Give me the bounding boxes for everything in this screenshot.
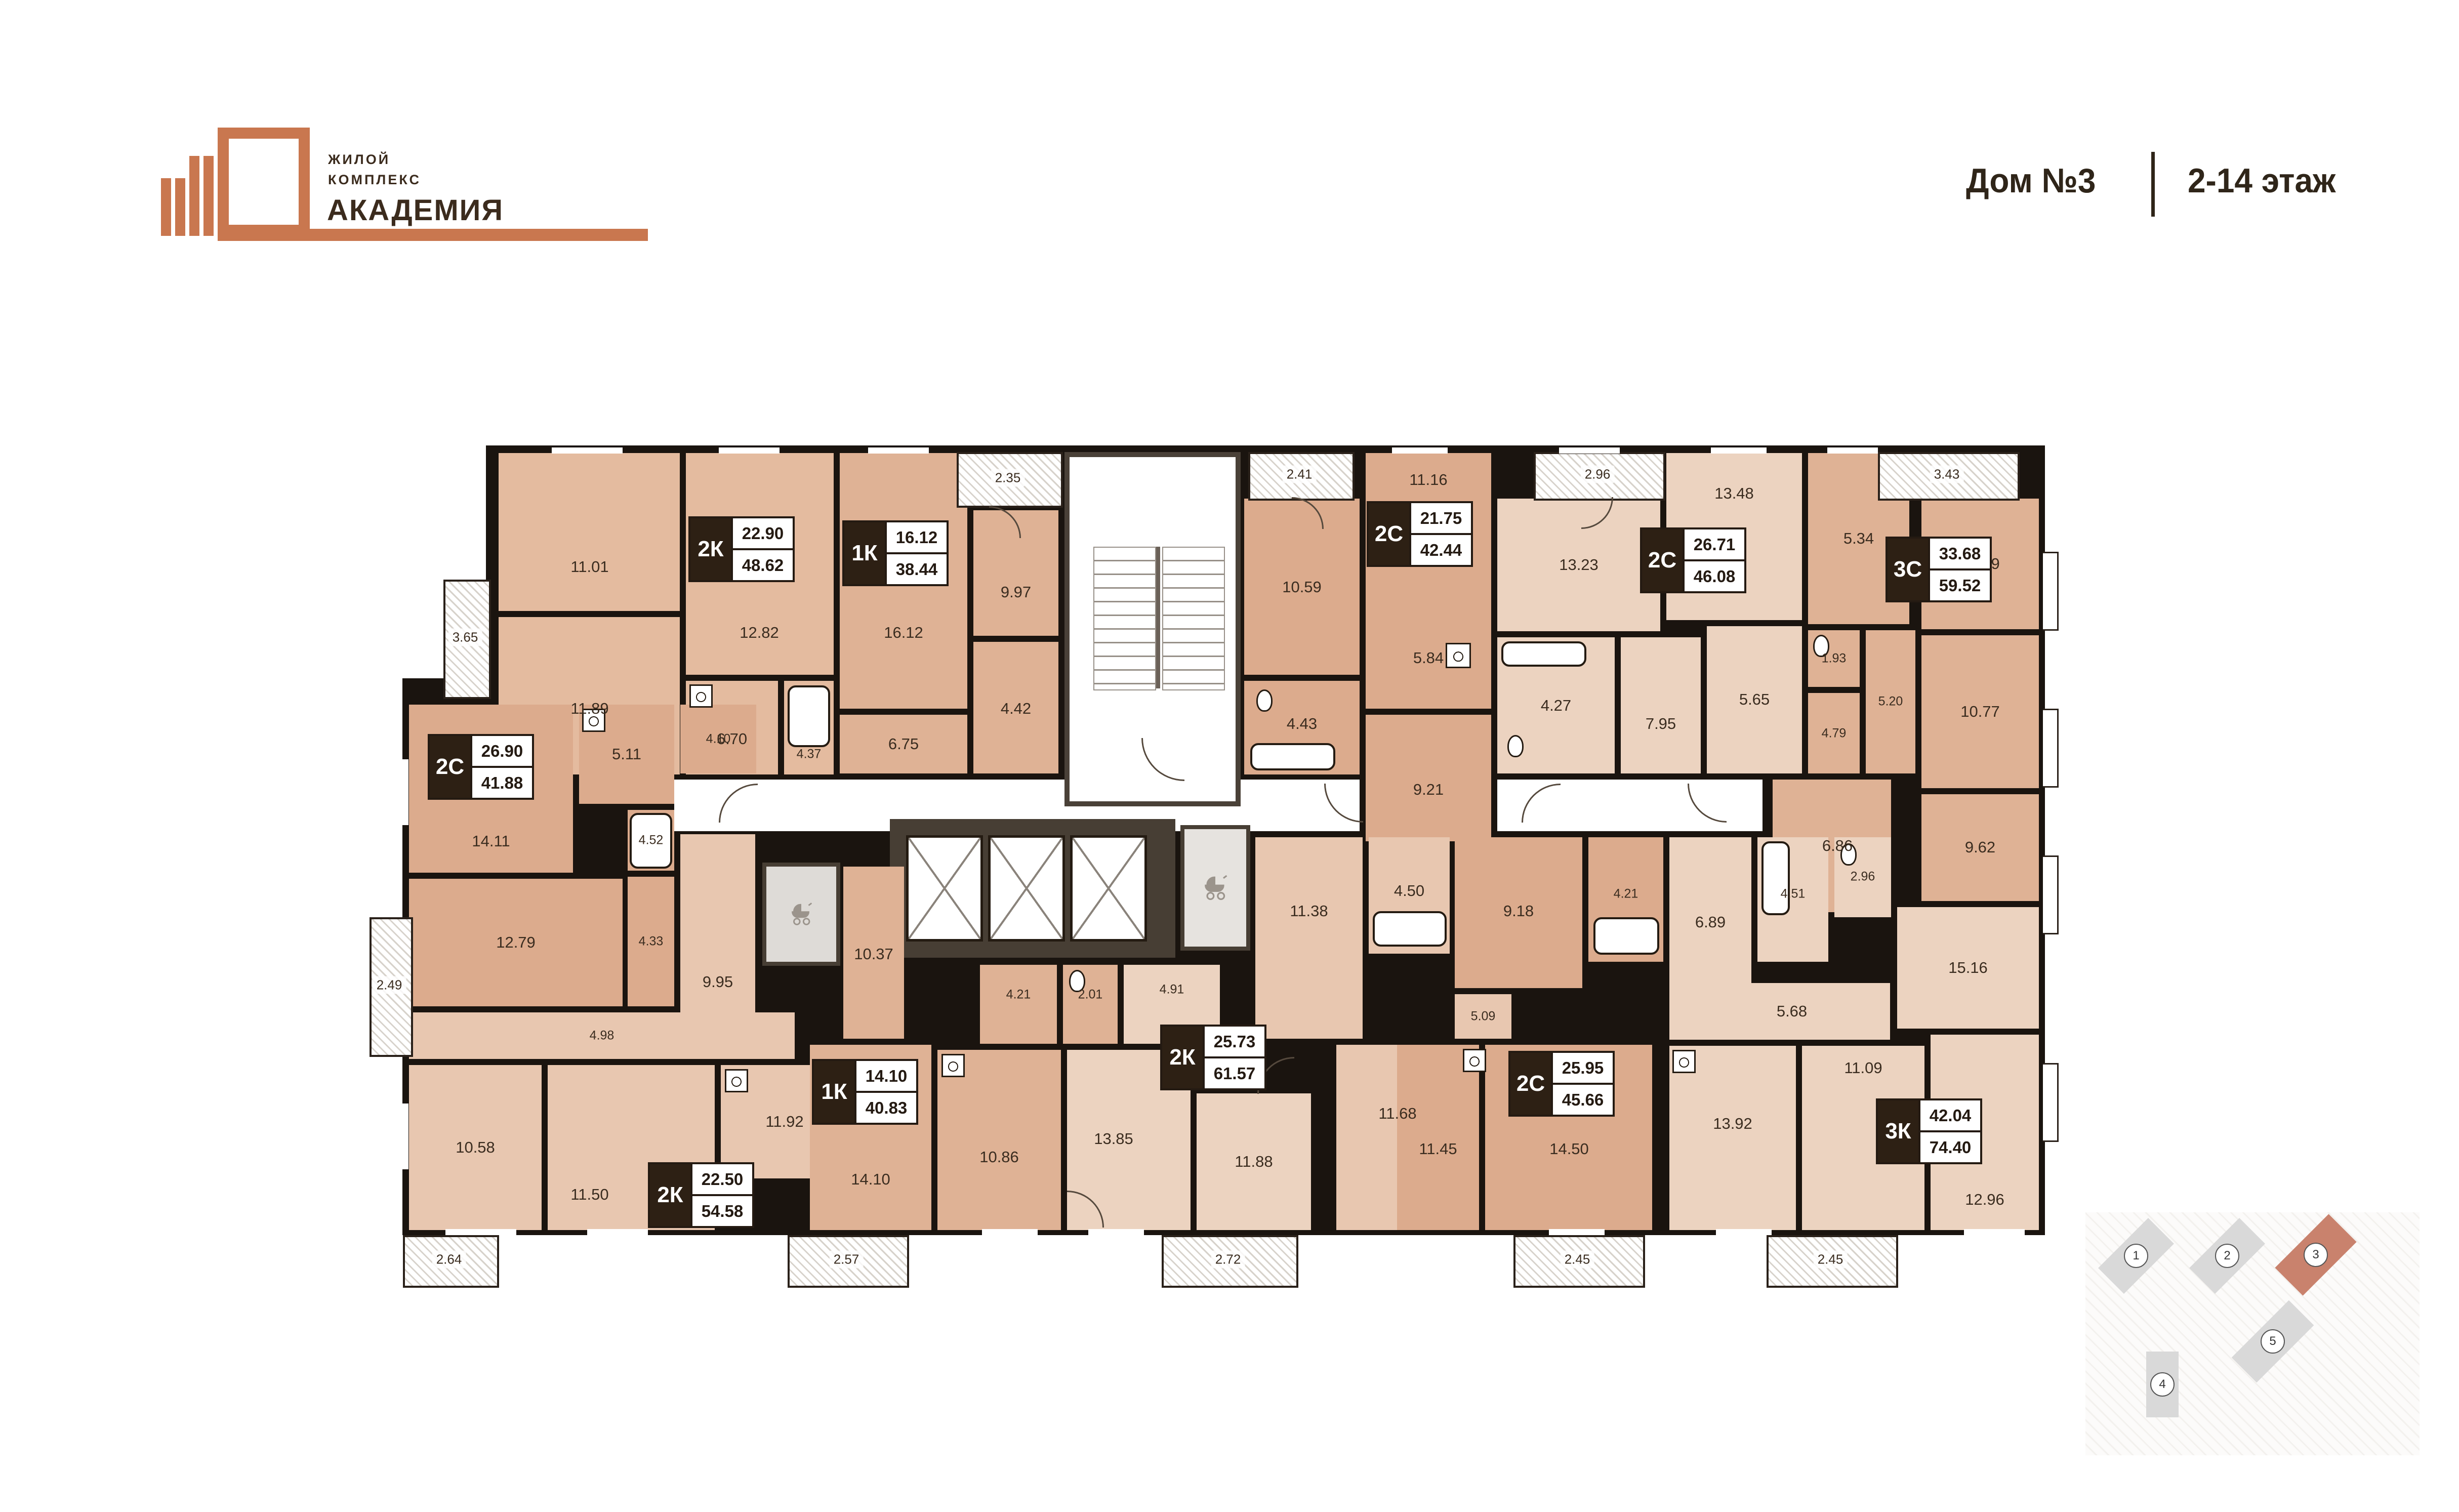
window-icon — [982, 1229, 1038, 1235]
apartment-type: 3К — [1878, 1100, 1918, 1162]
room-area-label: 7.95 — [1646, 715, 1676, 733]
room-area-label: 13.23 — [1559, 556, 1599, 574]
elevator-shaft-icon[interactable] — [906, 835, 983, 942]
apartment-badge[interactable]: 3К 42.0474.40 — [1876, 1098, 1982, 1164]
stroller-room — [1180, 825, 1250, 951]
apartment-badge[interactable]: 2К 25.7361.57 — [1160, 1025, 1266, 1090]
balcony-area-label: 3.43 — [1930, 466, 1964, 483]
room-area-label: 4.21 — [1006, 988, 1031, 1002]
room-area-label: 11.50 — [570, 1186, 608, 1204]
logo-line2: КОМПЛЕКС — [328, 172, 421, 188]
logo-bar-icon — [175, 178, 185, 236]
window-icon — [402, 759, 408, 825]
window-icon — [1549, 1229, 1605, 1235]
logo-bar-icon — [203, 156, 214, 236]
apartment-living-area: 42.04 — [1920, 1100, 1980, 1130]
room-area-label: 12.96 — [1965, 1191, 2004, 1209]
balcony-area-label: 2.45 — [1814, 1251, 1848, 1269]
apartment-badge[interactable]: 2К 22.5054.58 — [648, 1162, 754, 1228]
room-area-label: 11.92 — [765, 1113, 803, 1131]
minimap-building-number: 5 — [2261, 1329, 2285, 1354]
title-divider — [2151, 152, 2155, 217]
minimap-building-number: 4 — [2150, 1372, 2175, 1397]
apartment-total-area: 45.66 — [1553, 1085, 1613, 1115]
apartment-living-area: 26.90 — [472, 736, 532, 766]
room-area-label: 4.52 — [639, 833, 664, 848]
apartment-type: 2К — [650, 1164, 690, 1226]
apartment-living-area: 21.75 — [1411, 503, 1471, 533]
sink-icon — [1672, 1050, 1696, 1073]
apartment-total-area: 42.44 — [1411, 535, 1471, 565]
apartment-badge[interactable]: 1К 16.1238.44 — [842, 520, 949, 586]
apartment-total-area: 48.62 — [733, 550, 793, 580]
room-area-label: 5.65 — [1739, 690, 1770, 709]
apartment-type: 2К — [690, 518, 731, 580]
apartment-badge[interactable]: 2К 22.9048.62 — [688, 516, 795, 582]
balcony-area-label: 2.49 — [373, 976, 406, 994]
minimap-building-number: 2 — [2215, 1244, 2239, 1268]
room-area-label: 2.96 — [1851, 870, 1875, 884]
room-area-label: 4.10 — [706, 732, 731, 747]
window-icon — [1964, 1229, 2025, 1235]
window-icon — [868, 447, 929, 454]
room-area-label: 10.86 — [979, 1148, 1019, 1166]
window-icon — [587, 1229, 648, 1235]
apartment-total-area: 40.83 — [856, 1093, 916, 1123]
room-area-label: 5.20 — [1878, 694, 1903, 709]
balcony-area-label: 3.65 — [448, 629, 482, 646]
room-area-label: 9.95 — [703, 973, 733, 991]
apartment-total-area: 74.40 — [1920, 1132, 1980, 1162]
sink-icon — [689, 684, 713, 708]
room[interactable] — [980, 965, 1057, 1044]
room-area-label: 4.27 — [1541, 697, 1571, 715]
room-area-label: 13.48 — [1714, 484, 1754, 503]
french-window-icon — [2043, 552, 2059, 631]
room-area-label: 5.09 — [1471, 1009, 1496, 1024]
apartment-living-area: 33.68 — [1930, 539, 1990, 568]
apartment-living-area: 25.73 — [1205, 1027, 1264, 1056]
room-area-label: 11.09 — [1844, 1059, 1882, 1077]
sink-icon — [1463, 1049, 1486, 1072]
apartment-badge[interactable]: 3С 33.6859.52 — [1886, 537, 1992, 602]
window-icon — [1711, 447, 1767, 454]
room-area-label: 14.10 — [851, 1170, 890, 1189]
room-area-label: 4.79 — [1822, 726, 1847, 741]
apartment-total-area: 61.57 — [1205, 1058, 1264, 1088]
bathtub-icon — [1501, 641, 1586, 667]
apartment-type: 2С — [430, 736, 470, 798]
room-area-label: 11.01 — [570, 558, 608, 576]
room[interactable] — [1366, 715, 1491, 841]
room-area-label: 10.58 — [456, 1138, 495, 1157]
room-area-label: 6.75 — [888, 735, 919, 753]
apartment-total-area: 54.58 — [692, 1196, 752, 1226]
window-icon — [1392, 447, 1448, 454]
room-area-label: 11.89 — [570, 700, 608, 718]
apartment-type: 2С — [1642, 529, 1683, 591]
apartment-badge[interactable]: 2С 25.9545.66 — [1508, 1051, 1615, 1117]
room-area-label: 10.59 — [1282, 578, 1322, 596]
room-area-label: 16.12 — [884, 624, 923, 642]
french-window-icon — [2043, 855, 2059, 934]
apartment-living-area: 16.12 — [887, 522, 947, 552]
logo-name: АКАДЕМИЯ — [327, 193, 504, 227]
apartment-badge[interactable]: 1К 14.1040.83 — [812, 1059, 918, 1125]
room-area-label: 4.42 — [1001, 700, 1031, 718]
apartment-type: 1К — [844, 522, 885, 584]
room-area-label: 10.77 — [1960, 703, 2000, 721]
french-window-icon — [2043, 709, 2059, 788]
window-icon — [1088, 1229, 1144, 1235]
french-window-icon — [2043, 1063, 2059, 1142]
logo-line1: ЖИЛОЙ — [328, 152, 390, 168]
balcony-area-label: 2.41 — [1283, 466, 1317, 483]
room-area-label: 4.43 — [1287, 715, 1317, 733]
sink-icon — [725, 1069, 748, 1092]
logo-building-icon — [218, 128, 310, 236]
apartment-badge[interactable]: 2С 26.9041.88 — [428, 734, 534, 800]
room-area-label: 4.98 — [590, 1029, 614, 1043]
balcony-area-label: 2.35 — [991, 469, 1025, 487]
window-icon — [1716, 1229, 1772, 1235]
elevator-shaft-icon[interactable] — [1070, 835, 1147, 942]
room-area-label: 5.34 — [1843, 529, 1874, 548]
room-area-label: 9.21 — [1413, 781, 1444, 799]
apartment-type: 1К — [814, 1061, 854, 1123]
apartment-type: 2К — [1162, 1027, 1203, 1088]
apartment-badge[interactable]: 2С 21.7542.44 — [1367, 501, 1473, 567]
room-area-label: 9.62 — [1965, 838, 1995, 856]
room-area-label: 4.33 — [639, 934, 664, 949]
window-icon — [402, 1104, 408, 1169]
stroller-icon — [1199, 872, 1232, 904]
stroller-room — [762, 863, 840, 966]
room-area-label: 4.21 — [1614, 887, 1638, 902]
room-area-label: 2.01 — [1078, 988, 1103, 1002]
minimap-building-number: 3 — [2304, 1243, 2328, 1267]
apartment-living-area: 25.95 — [1553, 1053, 1613, 1083]
apartment-living-area: 22.90 — [733, 518, 793, 548]
apartment-type: 2С — [1510, 1053, 1551, 1115]
apartment-total-area: 46.08 — [1685, 561, 1744, 591]
elevator-shaft-icon[interactable] — [988, 835, 1065, 942]
sink-icon — [941, 1054, 965, 1077]
window-icon — [1827, 447, 1878, 454]
room-area-label: 11.88 — [1235, 1153, 1273, 1171]
balcony-area-label: 2.64 — [432, 1251, 466, 1269]
bathtub-icon — [788, 685, 830, 747]
apartment-badge[interactable]: 2С 26.7146.08 — [1640, 527, 1746, 593]
room-area-label: 11.68 — [1378, 1105, 1416, 1123]
toilet-icon — [1256, 689, 1273, 712]
logo-bar-icon — [189, 156, 199, 236]
room-area-label: 9.97 — [1001, 583, 1031, 601]
room-area-label: 4.37 — [797, 747, 822, 762]
apartment-living-area: 14.10 — [856, 1061, 916, 1091]
room-area-label: 14.50 — [1549, 1140, 1589, 1158]
room-area-label: 11.38 — [1290, 902, 1328, 920]
balcony-area-label: 2.45 — [1561, 1251, 1594, 1269]
bathtub-icon — [1761, 841, 1790, 915]
stairs-flight-icon — [1093, 547, 1156, 690]
room-area-label: 9.18 — [1503, 902, 1534, 920]
window-icon — [552, 447, 623, 454]
window-icon — [1559, 447, 1620, 454]
room-area-label: 6.89 — [1695, 913, 1726, 931]
bathtub-icon — [1250, 743, 1335, 770]
balcony-area-label: 2.57 — [830, 1251, 864, 1269]
logo-baseline-icon — [218, 229, 648, 241]
room-area-label: 15.16 — [1948, 959, 1988, 977]
apartment-total-area: 59.52 — [1930, 570, 1990, 600]
apartment-total-area: 38.44 — [887, 554, 947, 584]
room-area-label: 13.85 — [1094, 1130, 1133, 1148]
apartment-living-area: 22.50 — [692, 1164, 752, 1194]
room[interactable] — [1669, 1046, 1796, 1230]
apartment-total-area: 41.88 — [472, 768, 532, 798]
room-area-label: 12.79 — [496, 933, 536, 952]
logo-bar-icon — [161, 178, 171, 236]
sink-icon — [1446, 643, 1471, 668]
bathtub-icon — [1373, 911, 1447, 947]
room-area-label: 4.50 — [1394, 882, 1424, 900]
room[interactable] — [1255, 837, 1363, 1039]
apartment-living-area: 26.71 — [1685, 529, 1744, 559]
room[interactable] — [1397, 1045, 1479, 1230]
floor-plan-page: ЖИЛОЙ КОМПЛЕКС АКАДЕМИЯ Дом №3 2-14 этаж — [0, 0, 2459, 1512]
toilet-icon — [1507, 735, 1524, 757]
stairs-flight-icon — [1162, 547, 1225, 690]
room-area-label: 1.93 — [1822, 651, 1847, 666]
room-area-label: 5.84 — [1413, 649, 1444, 667]
room-area-label: 4.51 — [1781, 887, 1806, 902]
room-area-label: 12.82 — [740, 624, 779, 642]
room-area-label: 11.45 — [1419, 1140, 1457, 1158]
room-area-label: 4.91 — [1160, 983, 1184, 997]
room-area-label: 13.92 — [1713, 1115, 1752, 1133]
room[interactable] — [680, 834, 755, 1033]
balcony-area-label: 2.96 — [1581, 466, 1615, 483]
room-area-label: 6.86 — [1822, 837, 1853, 855]
balcony-area-label: 2.72 — [1211, 1251, 1245, 1269]
apartment-type: 2С — [1369, 503, 1409, 565]
window-icon — [719, 447, 780, 454]
apartment-type: 3С — [1888, 539, 1928, 600]
room-area-label: 5.68 — [1777, 1002, 1807, 1020]
room-area-label: 5.11 — [612, 745, 641, 763]
stroller-icon — [787, 900, 816, 929]
floors-title: 2-14 этаж — [2188, 161, 2335, 200]
house-title: Дом №3 — [1966, 161, 2096, 200]
room-area-label: 10.37 — [854, 945, 893, 963]
minimap-building-4[interactable]: 4 — [2146, 1352, 2179, 1417]
room-area-label: 11.16 — [1409, 471, 1447, 489]
bathtub-icon — [1593, 917, 1659, 955]
stairs-divider — [1156, 547, 1160, 688]
minimap-building-number: 1 — [2124, 1244, 2148, 1268]
room[interactable] — [499, 453, 680, 611]
window-icon — [445, 1229, 516, 1235]
room-area-label: 14.11 — [472, 832, 510, 850]
room[interactable] — [1621, 637, 1701, 773]
